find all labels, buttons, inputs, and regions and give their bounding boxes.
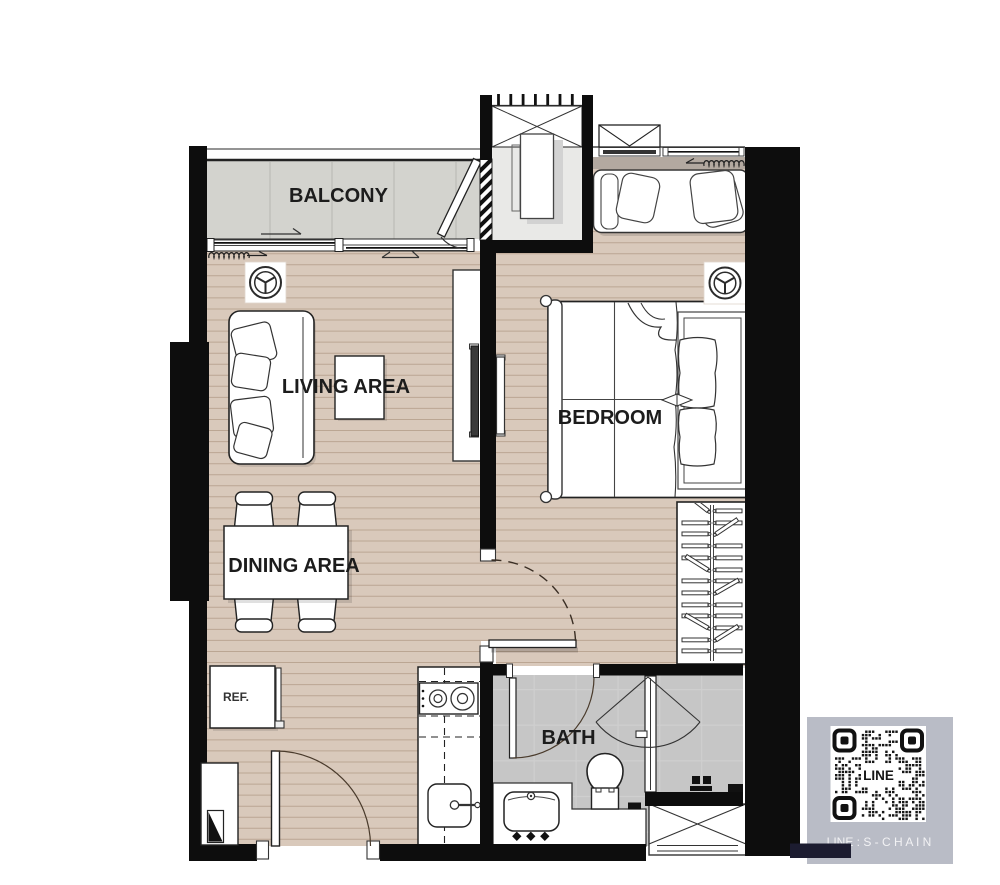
svg-text:BALCONY: BALCONY [289,185,389,207]
svg-text:LINE: LINE [863,768,894,783]
svg-text:BATH: BATH [541,727,595,749]
svg-text:REF.: REF. [223,690,249,704]
svg-text:DINING AREA: DINING AREA [228,555,359,577]
svg-text:BEDROOM: BEDROOM [558,407,662,429]
svg-text:LIVING AREA: LIVING AREA [282,376,410,398]
